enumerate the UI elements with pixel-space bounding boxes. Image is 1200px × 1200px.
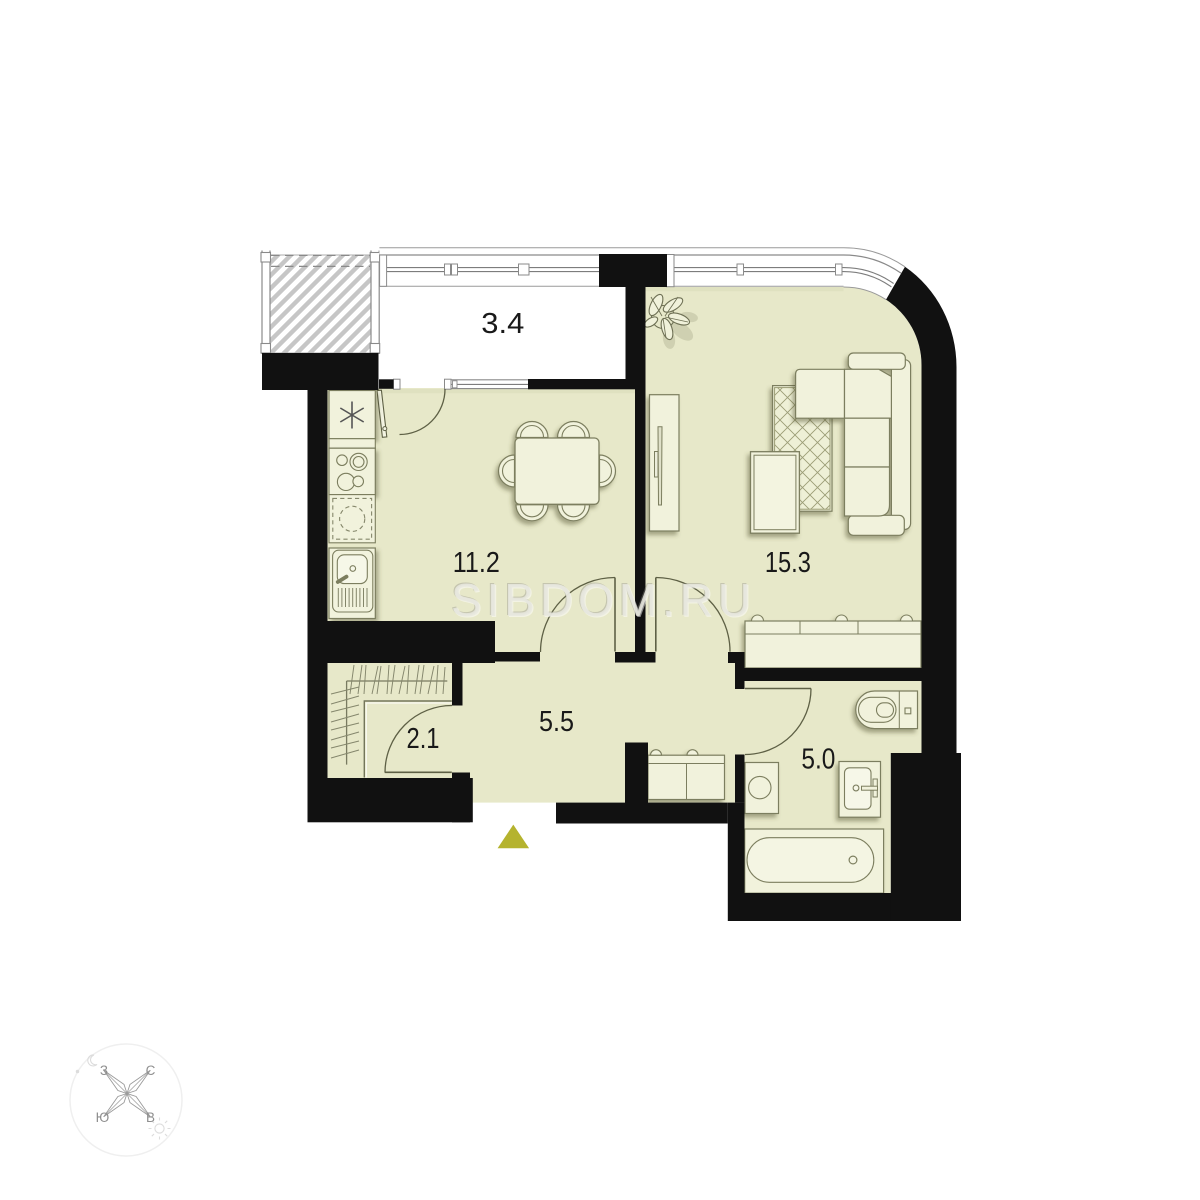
svg-text:5.0: 5.0 bbox=[801, 744, 835, 776]
svg-text:2.1: 2.1 bbox=[407, 723, 440, 755]
svg-text:Ю: Ю bbox=[96, 1110, 110, 1125]
svg-text:С: С bbox=[146, 1063, 156, 1078]
svg-text:З: З bbox=[100, 1063, 108, 1078]
svg-text:3.4: 3.4 bbox=[481, 308, 524, 340]
svg-text:SIBDOM.RU: SIBDOM.RU bbox=[451, 574, 753, 626]
svg-text:15.3: 15.3 bbox=[765, 547, 811, 579]
svg-text:5.5: 5.5 bbox=[539, 706, 574, 738]
svg-text:В: В bbox=[146, 1110, 155, 1125]
